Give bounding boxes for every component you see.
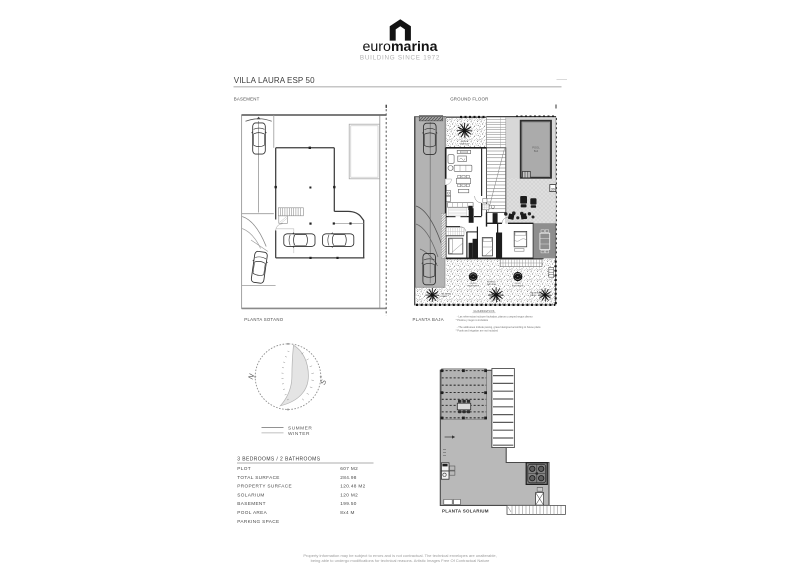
svg-text:TOTAL SURFACE: TOTAL SURFACE — [237, 475, 279, 480]
svg-text:199.50: 199.50 — [340, 501, 356, 506]
svg-text:8x4 M: 8x4 M — [340, 510, 355, 515]
svg-text:PLANTA SOLARIUM: PLANTA SOLARIUM — [442, 509, 489, 514]
svg-text:120.48 M2: 120.48 M2 — [340, 484, 365, 489]
svg-text:PROPERTY SURFACE: PROPERTY SURFACE — [237, 484, 292, 489]
svg-text:GROUND FLOOR: GROUND FLOOR — [450, 97, 488, 102]
svg-text:8x4: 8x4 — [534, 149, 539, 153]
svg-text:being able to undergo modifica: being able to undergo modifications for … — [311, 558, 491, 563]
svg-text:- The addresses include paving: - The addresses include paving, gravel d… — [457, 325, 541, 329]
svg-text:EXISTENTE: EXISTENTE — [512, 286, 524, 288]
svg-text:VILLA LAURA ESP 50: VILLA LAURA ESP 50 — [234, 76, 315, 85]
svg-text:PLANTA BAJA: PLANTA BAJA — [413, 317, 444, 322]
svg-text:PLANTA SOTANO: PLANTA SOTANO — [244, 317, 283, 322]
svg-text:BASEMENT: BASEMENT — [237, 501, 266, 506]
svg-text:SOLARIUM: SOLARIUM — [237, 492, 264, 497]
svg-text:* Pools and irrigation are not: * Pools and irrigation are not included — [456, 329, 499, 333]
svg-text:euromarina: euromarina — [363, 39, 438, 55]
svg-text:120 M2: 120 M2 — [340, 492, 358, 497]
svg-text:WASH.: WASH. — [530, 294, 537, 297]
svg-text:3 BEDROOMS / 2 BATHROOMS: 3 BEDROOMS / 2 BATHROOMS — [237, 456, 320, 462]
svg-text:PARKING SPACE: PARKING SPACE — [237, 519, 279, 524]
svg-text:WINTER: WINTER — [288, 431, 310, 437]
svg-text:* Piscina y riego no incluidos: * Piscina y riego no incluidos — [456, 318, 489, 322]
svg-text:EXISTENTE: EXISTENTE — [467, 286, 479, 288]
svg-text:PLOT: PLOT — [237, 466, 251, 471]
svg-text:SUMMER: SUMMER — [288, 425, 312, 431]
svg-text:WASH.: WASH. — [441, 295, 448, 298]
svg-text:GRAVA: GRAVA — [461, 140, 469, 143]
svg-text:NATURAL: NATURAL — [487, 283, 497, 286]
svg-text:POOL AREA: POOL AREA — [237, 510, 267, 515]
svg-text:- Las referencias incluyen fac: - Las referencias incluyen fachadas, pla… — [457, 315, 533, 319]
svg-text:30: 30 — [551, 187, 555, 191]
svg-text:BUILDING SINCE 1972: BUILDING SINCE 1972 — [360, 54, 440, 61]
svg-text:POOL: POOL — [532, 145, 540, 149]
svg-text:BLANCA: BLANCA — [460, 142, 469, 145]
svg-text:GUARDAVIVOS: GUARDAVIVOS — [473, 309, 494, 313]
svg-text:284.98: 284.98 — [340, 475, 356, 480]
svg-text:607 M2: 607 M2 — [340, 466, 358, 471]
svg-text:BASEMENT: BASEMENT — [234, 97, 260, 102]
